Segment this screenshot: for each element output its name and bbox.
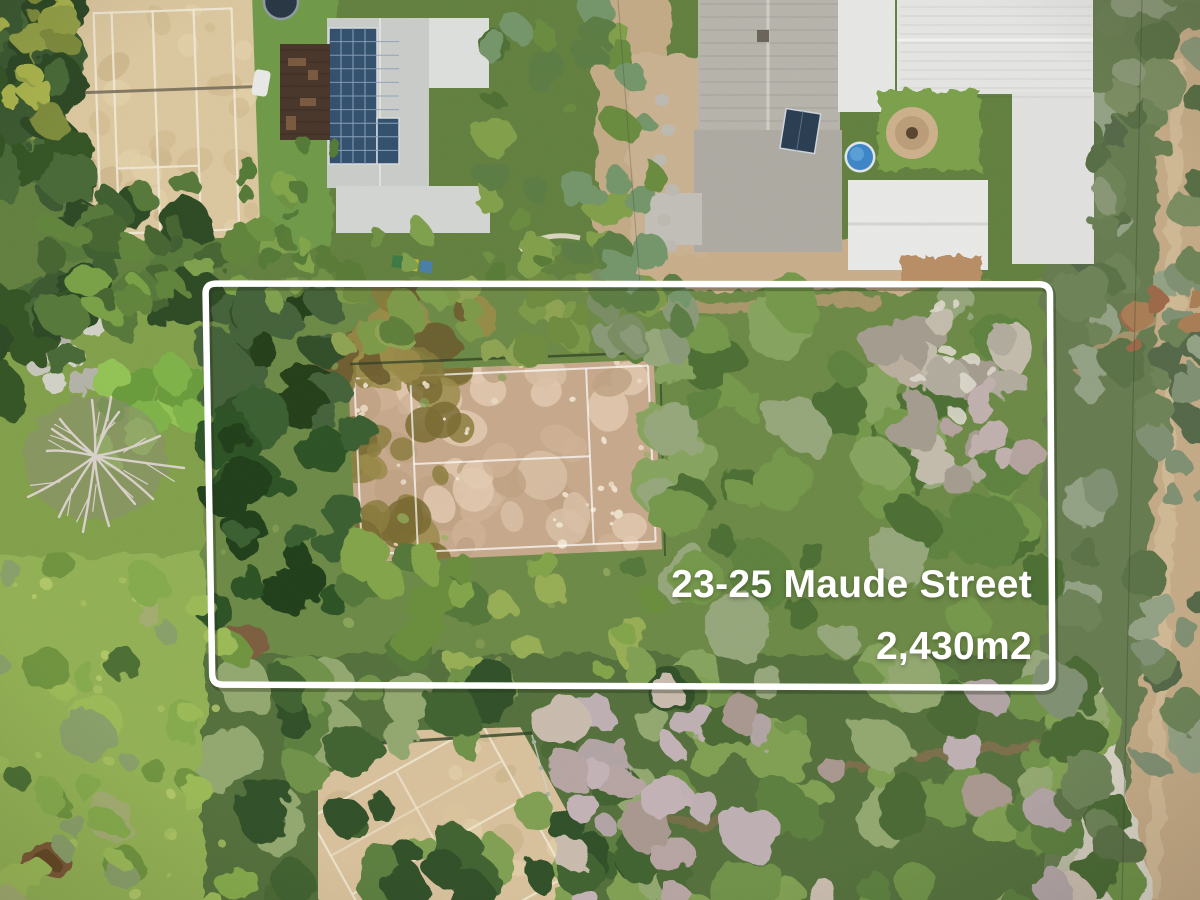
property-boundary-line	[206, 284, 1053, 688]
property-boundary-overlay	[0, 0, 1200, 900]
boundary-shadow	[207, 286, 1054, 690]
aerial-photo: 23-25 Maude Street 2,430m2	[0, 0, 1200, 900]
